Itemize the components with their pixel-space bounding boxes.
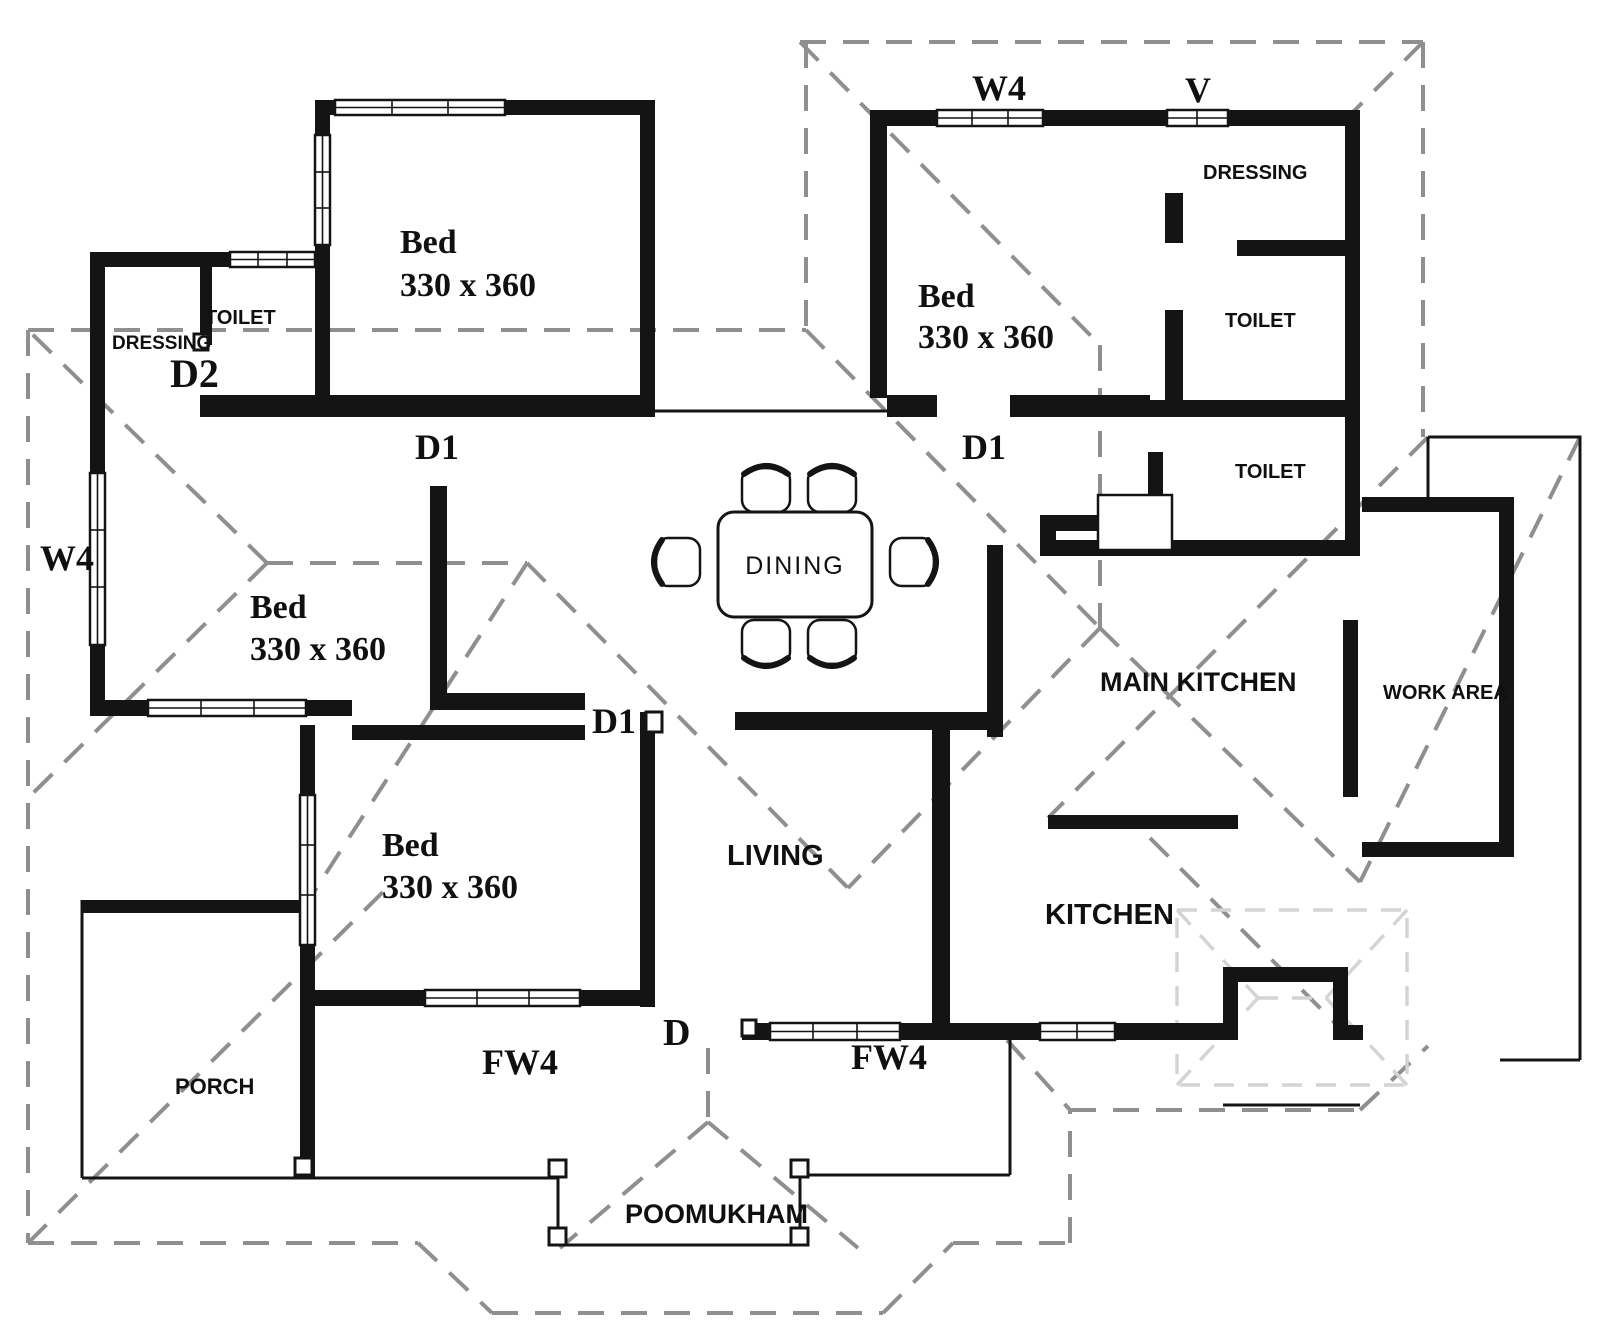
poomukham-column [791,1160,808,1177]
chair [656,538,700,586]
opening-label-d: D [663,1012,690,1054]
room-label-bed2-name: Bed [250,589,307,626]
room-label-bed1-name: Bed [400,224,457,261]
chair [808,468,856,512]
room-label-bed3-name: Bed [382,827,439,864]
room-label-bed4-name: Bed [918,278,975,315]
opening-label-d2: D2 [170,351,219,396]
room-label-porch: PORCH [175,1074,254,1099]
floor-plan-page: Bed 330 x 360 Bed 330 x 360 Bed 330 x 36… [0,0,1600,1331]
opening-label-fw4-left: FW4 [482,1042,558,1082]
window-w4-top [937,110,1043,126]
opening-label-v-top: V [1185,70,1211,110]
opening-label-d1-left: D1 [415,427,459,467]
room-label-dining: DINING [745,552,845,580]
room-label-poomukham: POOMUKHAM [625,1199,808,1229]
room-label-bed1-size: 330 x 360 [400,267,536,304]
room-label-bed2-size: 330 x 360 [250,631,386,668]
window-v-top [1167,110,1228,126]
room-label-toilet-mid-right: TOILET [1235,461,1306,483]
door-jamb [646,712,662,732]
roof-outline-dashed-light [1177,910,1407,1085]
floor-plan-drawing: Bed 330 x 360 Bed 330 x 360 Bed 330 x 36… [0,0,1600,1331]
room-label-work-area: WORK AREA [1383,682,1508,704]
room-label-bed4-size: 330 x 360 [918,319,1054,356]
window-kitchen-bottom [1040,1023,1115,1040]
opening-label-d1-right: D1 [962,427,1006,467]
room-label-living: LIVING [727,840,824,872]
chair [808,620,856,664]
shower-tray [1098,495,1172,550]
door-jamb [742,1020,756,1036]
window-bed1-top [335,100,505,115]
opening-label-w4-top: W4 [972,68,1026,108]
room-label-kitchen: KITCHEN [1045,899,1174,931]
room-label-bed3-size: 330 x 360 [382,869,518,906]
door-jamb [295,1158,312,1175]
opening-label-d1-mid: D1 [592,701,636,741]
columns-and-jambs [194,334,808,1245]
room-label-main-kitchen: MAIN KITCHEN [1100,667,1297,697]
window-toilet-top-left [230,252,315,267]
window-bed3-left [300,795,315,945]
poomukham-column [791,1228,808,1245]
poomukham-column [549,1228,566,1245]
window-bed2-bottom [148,700,306,716]
chair [890,538,934,586]
room-label-dressing-top-right: DRESSING [1203,162,1307,184]
chair [742,468,790,512]
chair [742,620,790,664]
window-bed1-left [315,135,330,245]
opening-label-fw4-right: FW4 [851,1037,927,1077]
room-label-toilet-top-right: TOILET [1225,310,1296,332]
window-fw4-left [425,990,580,1006]
room-label-toilet-top-left: TOILET [205,307,276,329]
opening-label-w4-left: W4 [40,538,94,578]
poomukham-column [549,1160,566,1177]
